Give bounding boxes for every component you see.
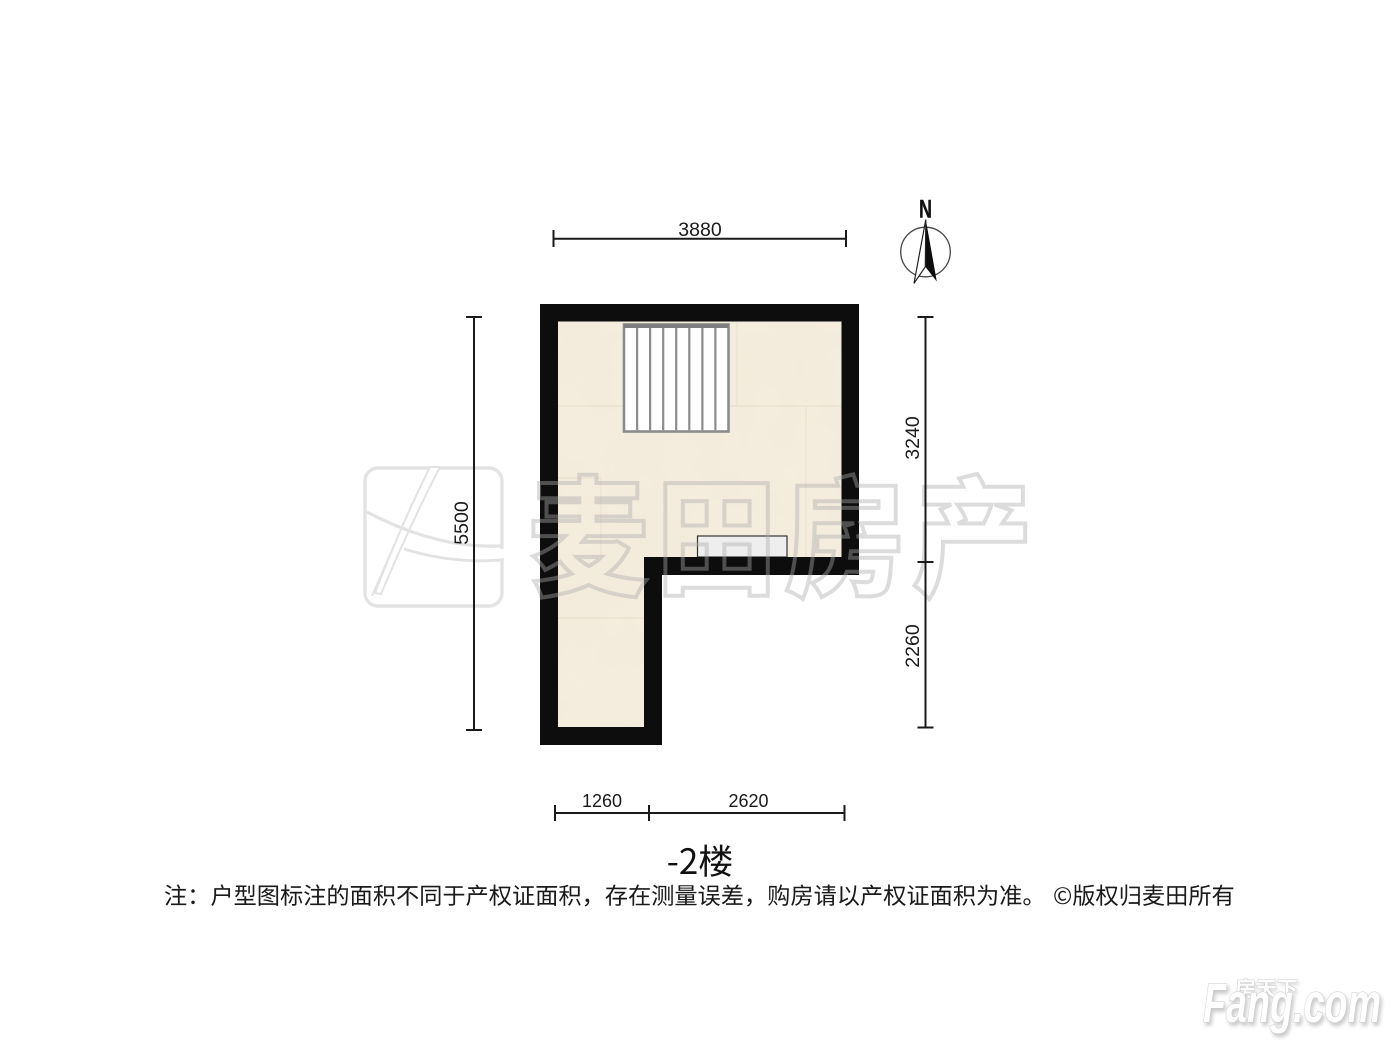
svg-text:N: N (919, 195, 932, 224)
svg-text:2620: 2620 (728, 791, 768, 811)
svg-text:3240: 3240 (902, 416, 924, 460)
svg-text:1260: 1260 (582, 791, 622, 811)
svg-text:3880: 3880 (678, 219, 722, 241)
svg-text:2260: 2260 (902, 624, 924, 668)
svg-text:Fang.com: Fang.com (1203, 971, 1381, 1034)
svg-text:5500: 5500 (451, 501, 473, 545)
